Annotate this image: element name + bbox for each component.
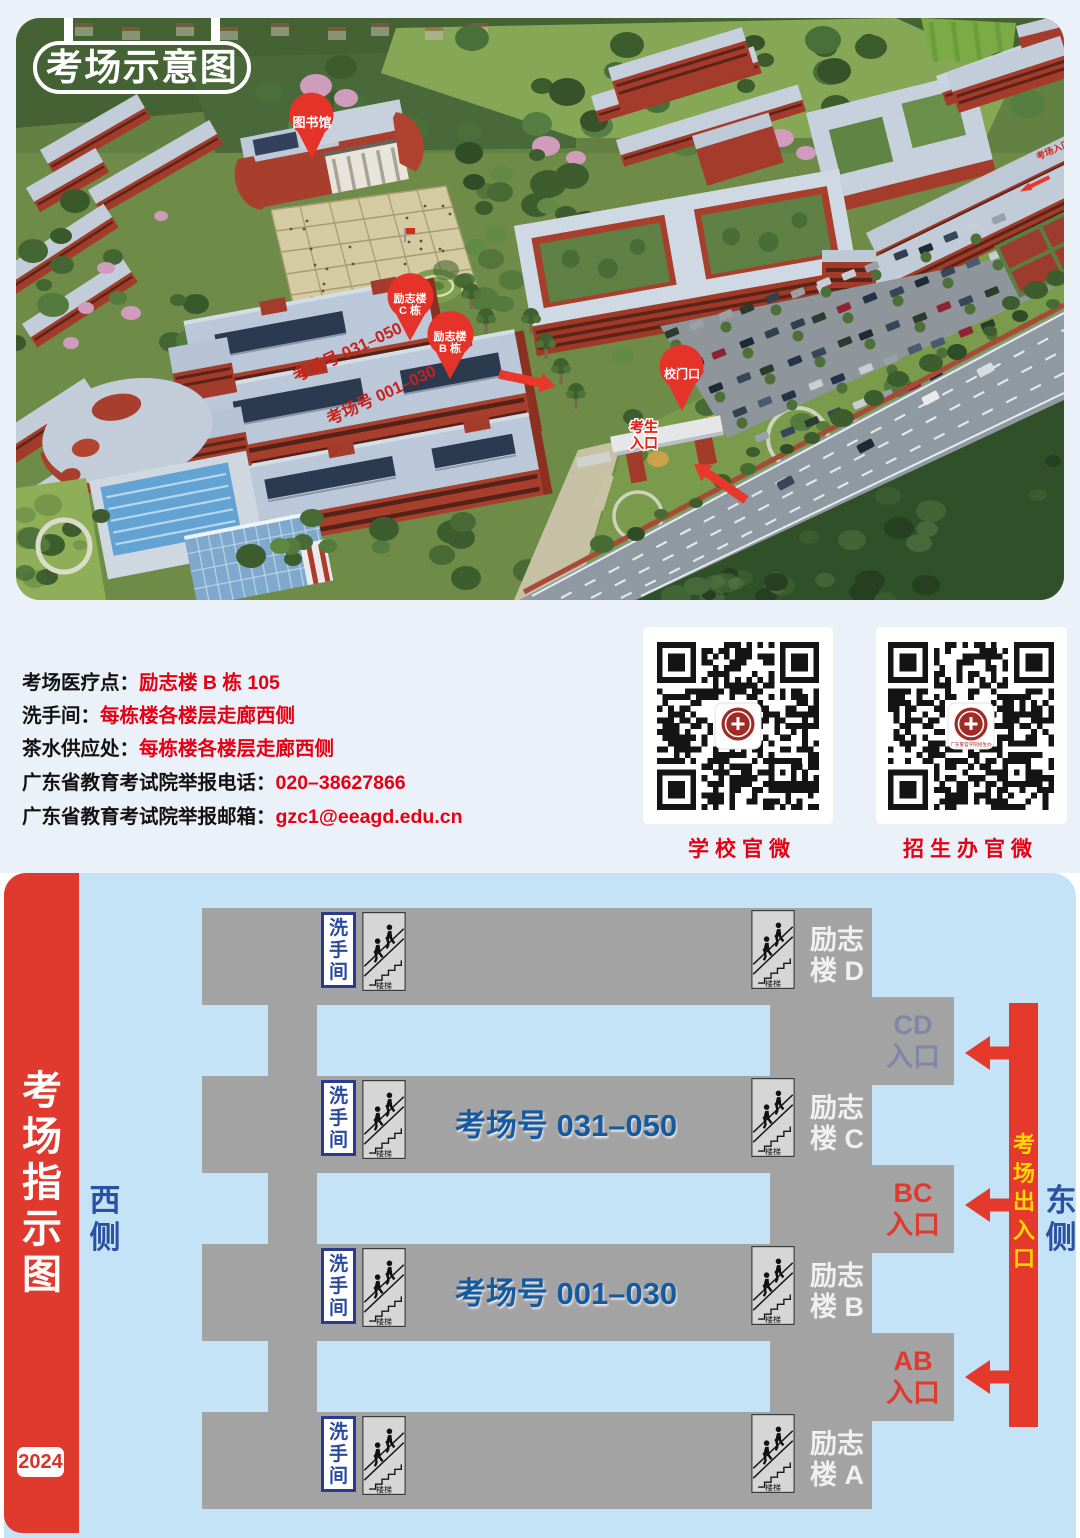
svg-text:广东警官学院招生办: 广东警官学院招生办 (950, 741, 992, 748)
svg-text:图书馆: 图书馆 (292, 115, 331, 130)
svg-text:励志楼: 励志楼 (434, 329, 467, 343)
svg-text:校门口: 校门口 (664, 366, 700, 381)
svg-text:C 栋: C 栋 (399, 303, 421, 317)
svg-text:考生: 考生 (630, 419, 658, 435)
svg-text:B 栋: B 栋 (439, 341, 461, 355)
svg-text:入口: 入口 (630, 435, 658, 451)
svg-text:励志楼: 励志楼 (394, 291, 427, 305)
